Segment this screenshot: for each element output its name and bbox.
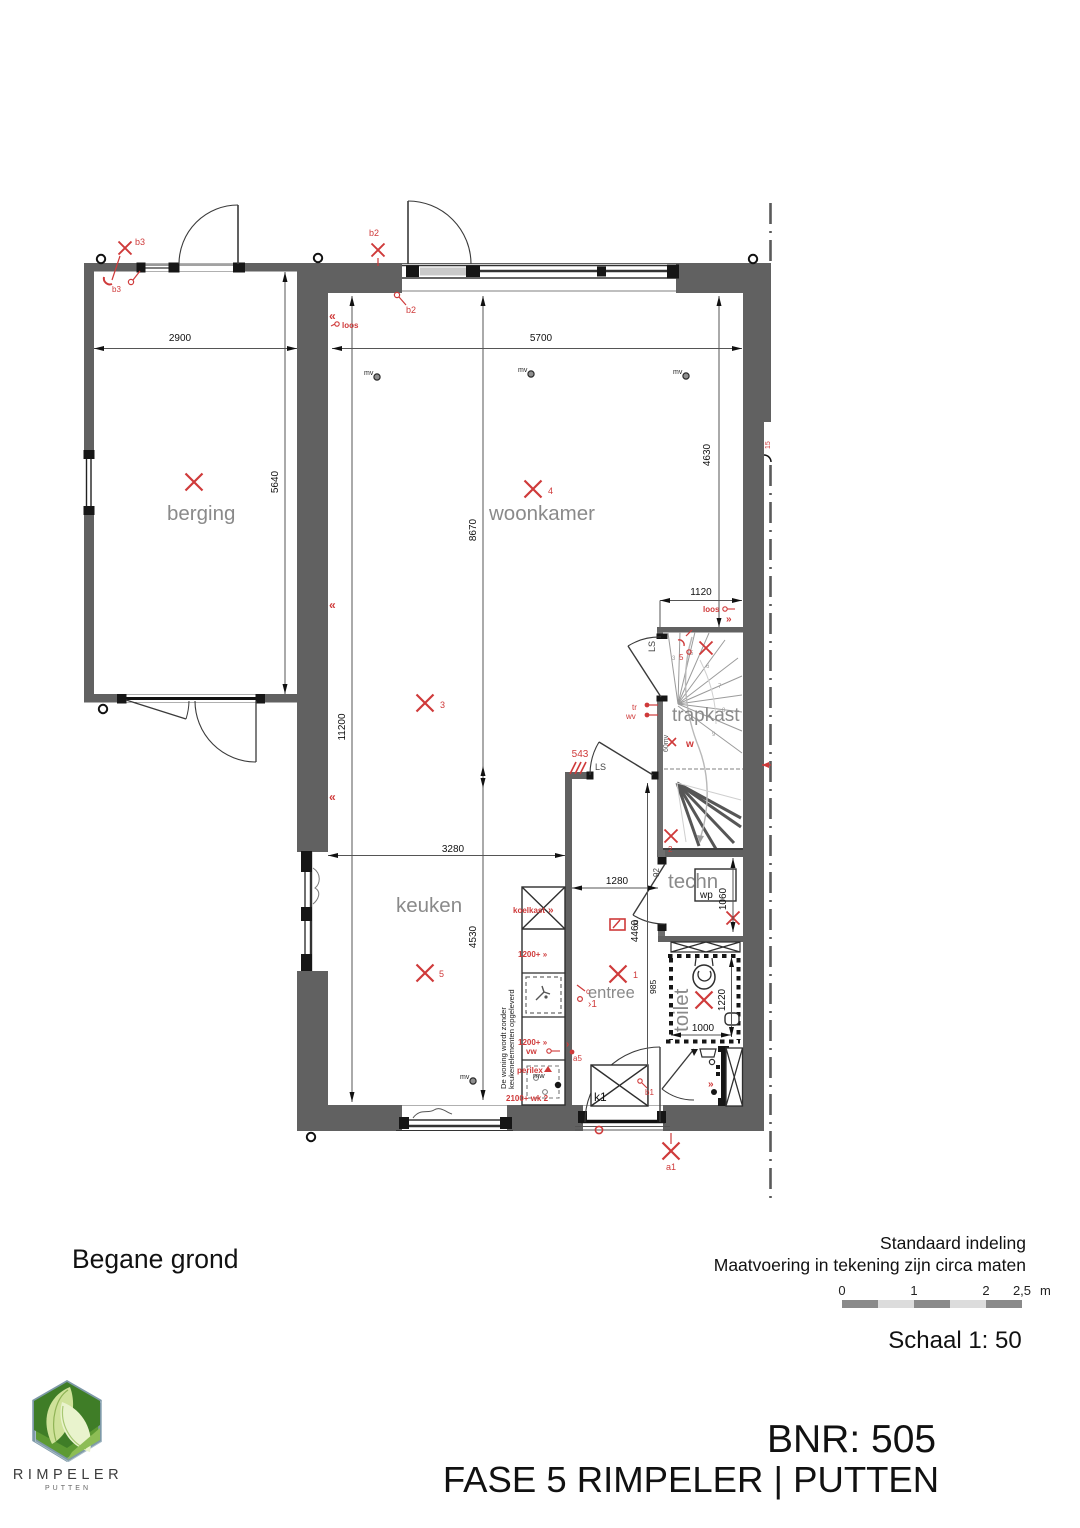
svg-text:1120: 1120 — [690, 587, 712, 598]
svg-text:Standaard indeling: Standaard indeling — [880, 1233, 1026, 1253]
svg-text:PUTTEN: PUTTEN — [45, 1485, 91, 1492]
svg-text:»: » — [708, 1079, 714, 1090]
svg-text:b3: b3 — [112, 285, 121, 294]
svg-text:tr: tr — [632, 703, 637, 712]
svg-text:1060: 1060 — [718, 887, 729, 910]
svg-text:60mv: 60mv — [663, 734, 670, 752]
svg-text:RIMPELER: RIMPELER — [13, 1467, 123, 1483]
svg-text:0: 0 — [838, 1283, 845, 1298]
svg-text:c: c — [586, 987, 590, 996]
svg-text:b2: b2 — [369, 228, 379, 238]
svg-text:Schaal 1: 50: Schaal 1: 50 — [888, 1327, 1021, 1354]
svg-text:8670: 8670 — [468, 518, 479, 541]
svg-text:92: 92 — [652, 868, 661, 877]
svg-text:keukenelementen opgeleverd: keukenelementen opgeleverd — [507, 989, 516, 1089]
svg-text:5: 5 — [679, 653, 684, 662]
svg-text:4: 4 — [548, 486, 553, 496]
svg-text:m: m — [1040, 1283, 1051, 1298]
svg-text:2: 2 — [668, 845, 673, 854]
svg-text:5: 5 — [439, 969, 444, 979]
svg-text:LS: LS — [647, 641, 657, 652]
svg-text:keuken: keuken — [396, 894, 462, 917]
svg-text:perilex: perilex — [517, 1066, 543, 1075]
svg-text:«: « — [329, 309, 336, 323]
svg-text:«: « — [329, 790, 336, 804]
svg-text:a5: a5 — [573, 1054, 582, 1063]
svg-text:trapkast: trapkast — [672, 705, 740, 726]
svg-text:b1: b1 — [645, 1088, 654, 1097]
svg-text:FASE 5 RIMPELER | PUTTEN: FASE 5 RIMPELER | PUTTEN — [443, 1459, 939, 1500]
svg-text:Begane grond: Begane grond — [72, 1244, 239, 1274]
svg-text:berging: berging — [167, 502, 235, 525]
svg-text:4630: 4630 — [702, 443, 713, 466]
svg-text:koelkast: koelkast — [513, 906, 545, 915]
svg-text:b2: b2 — [406, 305, 416, 315]
svg-text:5640: 5640 — [270, 470, 281, 493]
svg-text:3280: 3280 — [442, 844, 465, 855]
svg-text:2: 2 — [982, 1283, 989, 1298]
svg-text:1280: 1280 — [606, 876, 629, 887]
svg-text:wv: wv — [625, 712, 636, 721]
svg-text:b3: b3 — [135, 237, 145, 247]
svg-text:a1: a1 — [666, 1162, 676, 1172]
svg-text:3: 3 — [672, 656, 676, 662]
svg-text:2100+ wk 2: 2100+ wk 2 — [506, 1094, 549, 1103]
svg-text:toilet: toilet — [670, 988, 693, 1032]
svg-text:6: 6 — [706, 664, 710, 670]
svg-text:BNR: 505: BNR: 505 — [767, 1418, 936, 1461]
svg-text:15: 15 — [765, 441, 772, 449]
svg-text:1: 1 — [910, 1283, 917, 1298]
svg-text:loos: loos — [342, 321, 359, 330]
svg-text:k1: k1 — [594, 1090, 607, 1104]
svg-text:«: « — [329, 598, 336, 612]
svg-text:5700: 5700 — [530, 333, 553, 344]
svg-text:techn: techn — [668, 870, 718, 893]
svg-text:1200+ »: 1200+ » — [518, 950, 548, 959]
svg-text:1000: 1000 — [692, 1023, 715, 1034]
svg-text:woonkamer: woonkamer — [488, 502, 595, 525]
svg-text:543: 543 — [572, 749, 589, 760]
svg-text:vw: vw — [526, 1047, 537, 1056]
svg-text:›: › — [566, 1039, 569, 1050]
svg-text:R: R — [633, 919, 639, 928]
svg-text:4530: 4530 — [468, 925, 479, 948]
svg-text:985: 985 — [648, 980, 658, 994]
svg-text:2,5: 2,5 — [1013, 1283, 1031, 1298]
svg-text:Maatvoering in tekening zijn c: Maatvoering in tekening zijn circa maten — [714, 1255, 1026, 1275]
svg-text:»: » — [548, 905, 554, 916]
svg-text:2900: 2900 — [169, 333, 192, 344]
svg-text:1220: 1220 — [717, 988, 728, 1011]
svg-text:3: 3 — [440, 700, 445, 710]
svg-text:loos: loos — [703, 605, 720, 614]
svg-text:›1: ›1 — [588, 999, 597, 1010]
svg-text:1200+ »: 1200+ » — [518, 1038, 548, 1047]
svg-text:w: w — [685, 739, 694, 750]
svg-text:1: 1 — [633, 970, 638, 980]
svg-text:LS: LS — [595, 762, 606, 772]
svg-text:11200: 11200 — [337, 713, 348, 741]
svg-text:»: » — [726, 614, 732, 625]
